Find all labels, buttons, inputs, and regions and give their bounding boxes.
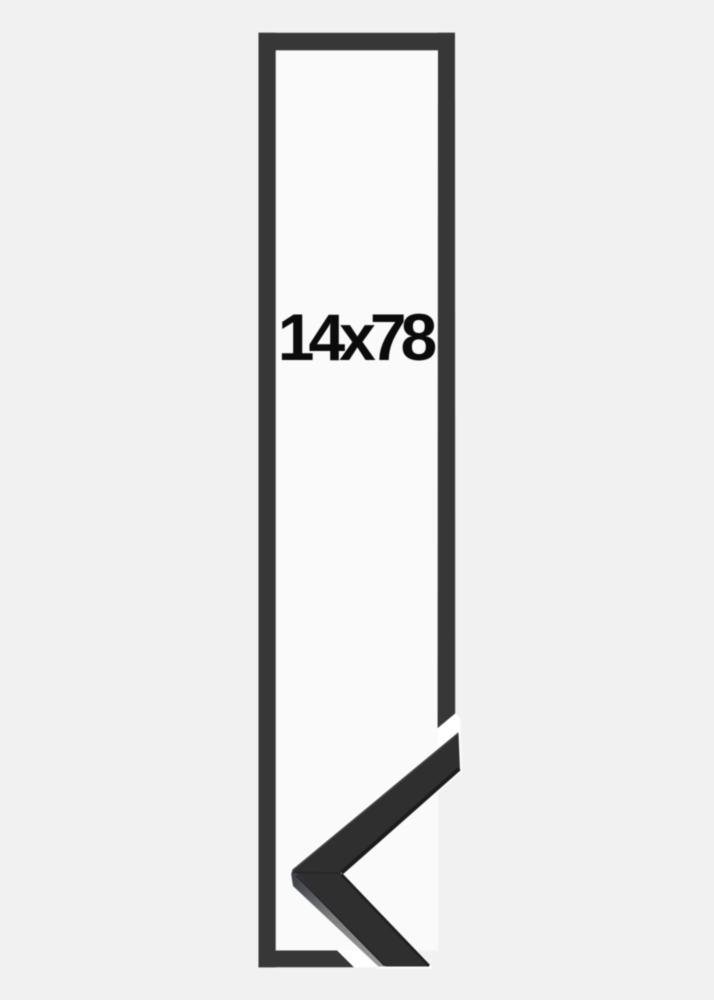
svg-text:14x78: 14x78 [278,300,436,374]
